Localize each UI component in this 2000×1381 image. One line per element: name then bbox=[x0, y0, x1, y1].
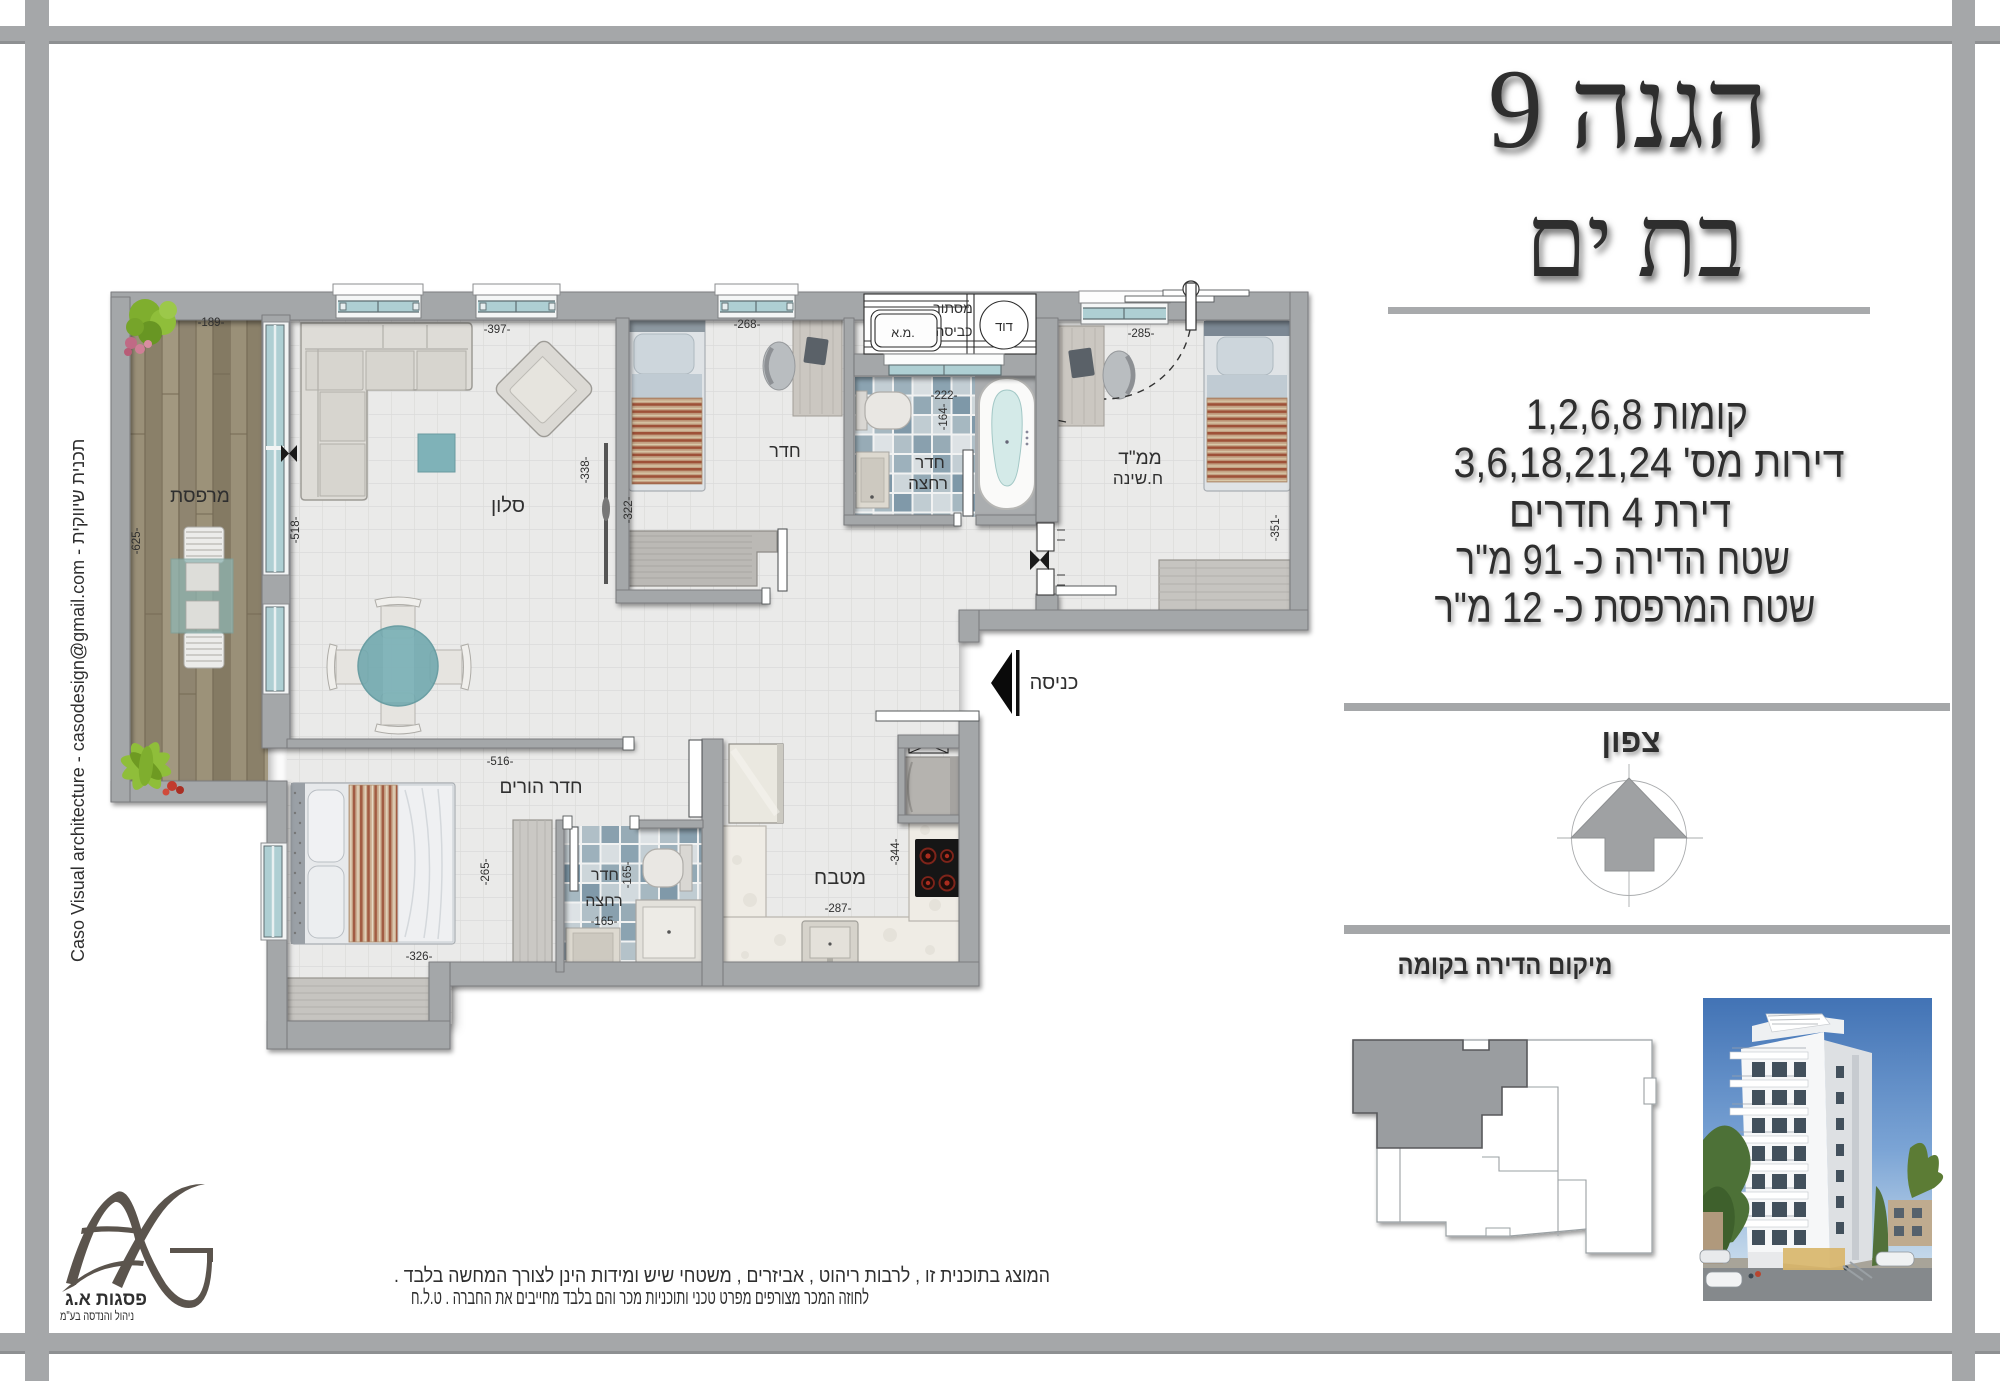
svg-text:-164-: -164- bbox=[938, 403, 950, 430]
svg-text:חדר: חדר bbox=[915, 453, 945, 472]
svg-text:-265-: -265- bbox=[480, 858, 492, 885]
svg-text:-165-: -165- bbox=[591, 916, 618, 928]
svg-text:-344-: -344- bbox=[890, 838, 902, 865]
svg-text:המוצג בתוכנית זו , לרבות ריהוט: המוצג בתוכנית זו , לרבות ריהוט , אביזרים… bbox=[394, 1265, 1050, 1287]
svg-text:חדר הורים: חדר הורים bbox=[499, 777, 582, 798]
svg-text:כביסה: כביסה bbox=[936, 323, 973, 339]
svg-text:חדר: חדר bbox=[769, 441, 800, 461]
svg-text:סלון: סלון bbox=[491, 495, 525, 517]
svg-text:מסתור: מסתור bbox=[933, 300, 972, 316]
svg-text:מטבח: מטבח bbox=[814, 867, 866, 889]
svg-text:-625-: -625- bbox=[131, 527, 143, 554]
svg-text:-268-: -268- bbox=[734, 319, 761, 331]
svg-text:שטח הדירה כ- 91 מ"ר: שטח הדירה כ- 91 מ"ר bbox=[1456, 536, 1790, 584]
svg-text:-397-: -397- bbox=[484, 324, 511, 336]
svg-text:דירת 4 חדרים: דירת 4 חדרים bbox=[1509, 489, 1731, 537]
svg-text:-351-: -351- bbox=[1270, 514, 1282, 541]
svg-text:כניסה: כניסה bbox=[1030, 672, 1079, 694]
svg-text:חדר: חדר bbox=[591, 867, 619, 884]
svg-text:ממ"ד: ממ"ד bbox=[1118, 448, 1161, 469]
svg-text:צפון: צפון bbox=[1602, 722, 1661, 759]
svg-text:-189-: -189- bbox=[198, 317, 225, 329]
svg-text:-165-: -165- bbox=[622, 861, 634, 888]
svg-text:קומות 1,2,6,8: קומות 1,2,6,8 bbox=[1526, 391, 1748, 439]
svg-text:בת ים: בת ים bbox=[1526, 186, 1745, 298]
svg-text:-222-: -222- bbox=[931, 390, 958, 402]
svg-text:רחצה: רחצה bbox=[585, 893, 622, 910]
svg-text:-287-: -287- bbox=[825, 903, 852, 915]
svg-text:רחצה: רחצה bbox=[908, 474, 948, 493]
svg-text:-338-: -338- bbox=[580, 456, 592, 483]
svg-text:דוד: דוד bbox=[995, 319, 1013, 334]
svg-text:מיקום הדירה בקומה: מיקום הדירה בקומה bbox=[1398, 950, 1613, 980]
svg-text:-326-: -326- bbox=[406, 951, 433, 963]
svg-text:מ.א.: מ.א. bbox=[891, 326, 914, 340]
svg-text:פסגות א.ג: פסגות א.ג bbox=[65, 1289, 147, 1310]
svg-text:לחוזה המכר מצורפים מפרט טכני ו: לחוזה המכר מצורפים מפרט טכני ותוכניות מכ… bbox=[411, 1287, 869, 1309]
svg-text:Caso Visual architecture - c: Caso Visual architecture - casodesign@gm… bbox=[68, 439, 88, 962]
svg-text:הגנה 9: הגנה 9 bbox=[1488, 47, 1768, 172]
svg-text:-518-: -518- bbox=[290, 516, 302, 543]
svg-text:דירות מס' 3,6,18,21,24: דירות מס' 3,6,18,21,24 bbox=[1454, 439, 1845, 487]
svg-text:מרפסת: מרפסת bbox=[170, 486, 230, 507]
svg-text:-285-: -285- bbox=[1128, 328, 1155, 340]
svg-text:ניהול והנדסה בע"מ: ניהול והנדסה בע"מ bbox=[60, 1309, 134, 1323]
svg-text:שטח המרפסת כ- 12 מ"ר: שטח המרפסת כ- 12 מ"ר bbox=[1435, 584, 1816, 632]
svg-text:ח.שינה: ח.שינה bbox=[1113, 469, 1163, 488]
svg-text:-322-: -322- bbox=[623, 496, 635, 523]
svg-text:-516-: -516- bbox=[487, 756, 514, 768]
